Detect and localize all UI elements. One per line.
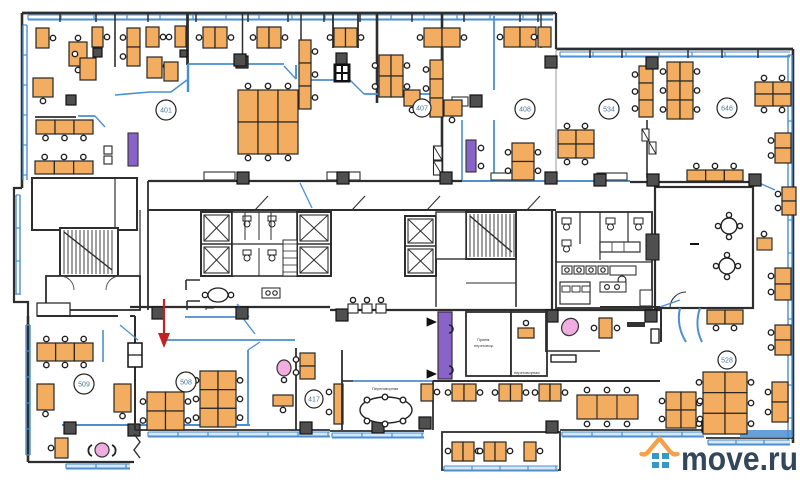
svg-text:508: 508 (180, 380, 192, 387)
svg-text:переговорная: переговорная (514, 370, 540, 375)
svg-text:534: 534 (603, 107, 615, 114)
svg-text:переговор.: переговор. (474, 343, 494, 348)
svg-text:401: 401 (160, 108, 172, 115)
svg-text:408: 408 (519, 107, 531, 114)
svg-text:407: 407 (416, 106, 428, 113)
svg-text:Прием.: Прием. (477, 337, 490, 342)
svg-text:646: 646 (721, 106, 733, 113)
svg-text:509: 509 (78, 382, 90, 389)
svg-text:417: 417 (308, 397, 320, 404)
svg-text:Переговорная: Переговорная (372, 386, 398, 391)
svg-text:move.ru: move.ru (681, 440, 798, 477)
svg-text:528: 528 (721, 358, 733, 365)
